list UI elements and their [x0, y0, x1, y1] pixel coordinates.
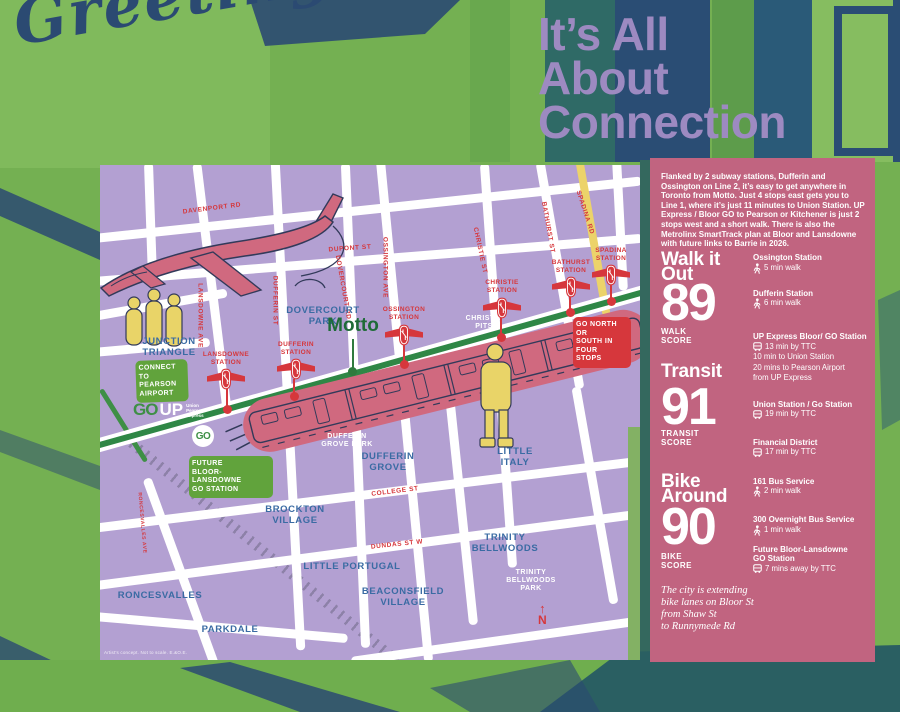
destination-detail: 20 mins to Pearson Airport [753, 363, 871, 374]
bus-icon [753, 410, 762, 419]
destination-item: 300 Overnight Bus Service 1 min walk [753, 515, 871, 536]
destination-item: Dufferin Station 6 min walk [753, 289, 871, 310]
station-marker-dot [497, 333, 506, 342]
walk-icon [753, 486, 761, 497]
motto-marker-dot [348, 367, 357, 376]
destination-name: Union Station / Go Station [753, 400, 871, 410]
bus-icon [753, 448, 762, 457]
page-title: It’s All About Connection [538, 12, 786, 144]
destination-detail: 13 min by TTC [753, 342, 871, 353]
bus-icon [753, 564, 762, 573]
transit-sidebar: Flanked by 2 subway stations, Dufferin a… [650, 158, 875, 662]
destination-detail: 17 min by TTC [753, 447, 871, 458]
destination-item: Union Station / Go Station 19 min by TTC [753, 400, 871, 420]
station-marker-dot [607, 297, 616, 306]
station-name-label: CHRISTIE STATION [457, 279, 547, 294]
destination-detail: 7 mins away by TTC [753, 564, 871, 575]
up-express-logo: GOUP Union Pearson Express [133, 401, 204, 418]
destination-detail: 6 min walk [753, 298, 871, 309]
destination-detail-text: 19 min by TTC [765, 409, 816, 420]
destination-item: UP Express Bloor/ GO Station 13 min by T… [753, 332, 871, 384]
transit-score-block: Transit 91 TRANSIT SCORE [661, 365, 756, 447]
ttc-logo-icon [206, 368, 246, 390]
park-edge-strip [628, 427, 640, 660]
destination-name: 300 Overnight Bus Service [753, 515, 871, 525]
destination-name: 161 Bus Service [753, 477, 871, 487]
station-marker-dot [400, 360, 409, 369]
destination-detail-text: 17 min by TTC [765, 447, 816, 458]
destination-detail: 10 min to Union Station [753, 352, 871, 363]
ttc-logo-icon [551, 276, 591, 298]
destination-detail: 19 min by TTC [753, 409, 871, 420]
map-attribution: Artist's concept. Not to scale. E.&O.E. [104, 650, 187, 655]
destination-detail-text: 10 min to Union Station [753, 352, 834, 363]
destination-detail-text: 13 min by TTC [765, 342, 816, 353]
destination-detail-text: 5 min walk [764, 263, 801, 274]
neighbourhood-label: PARKDALE [160, 625, 300, 636]
station-marker-dot [223, 405, 232, 414]
intro-paragraph: Flanked by 2 subway stations, Dufferin a… [661, 172, 865, 249]
destination-detail-text: from UP Express [753, 373, 812, 384]
destination-detail-text: 2 min walk [764, 486, 801, 497]
destination-detail: 1 min walk [753, 525, 871, 536]
bike-score-block: Bike Around 90 BIKE SCORE [661, 475, 756, 570]
walk-icon [753, 298, 761, 309]
destination-detail-text: 6 min walk [764, 298, 801, 309]
destination-item: Ossington Station 5 min walk [753, 253, 871, 274]
pedestrian-illustration [465, 340, 527, 452]
ttc-logo-icon [591, 264, 631, 286]
bike-score-value: 90 [661, 507, 756, 547]
go-transit-logo: GO [192, 425, 214, 447]
destination-name: Ossington Station [753, 253, 871, 263]
neighbourhood-label: LITTLE ITALY [445, 447, 585, 468]
bus-icon [753, 342, 762, 351]
destination-detail-text: 7 mins away by TTC [765, 564, 836, 575]
neighbourhood-label: BROCKTON VILLAGE [225, 505, 365, 526]
destination-item: 161 Bus Service 2 min walk [753, 477, 871, 498]
destination-detail-text: 1 min walk [764, 525, 801, 536]
ttc-logo-icon [276, 358, 316, 380]
map-panel: Motto GOUP Union Pearson Express GO ↑ N … [100, 165, 640, 660]
station-name-label: SPADINA STATION [566, 247, 640, 262]
walk-icon [753, 525, 761, 536]
bike-lanes-note: The city is extending bike lanes on Bloo… [661, 585, 761, 633]
destination-detail: from UP Express [753, 373, 871, 384]
destination-name: UP Express Bloor/ GO Station [753, 332, 871, 342]
compass: ↑ N [538, 603, 547, 626]
ttc-logo-icon [482, 297, 522, 319]
neighbourhood-label: TRINITY BELLWOODS [435, 533, 575, 554]
road-segment [351, 615, 640, 660]
destination-name: Financial District [753, 438, 871, 448]
station-marker-dot [290, 392, 299, 401]
motto-marker-stem [352, 339, 354, 368]
poster: Greetings It’s All About Connection [0, 0, 900, 712]
park-label: TRINITY BELLWOODS PARK [471, 569, 591, 593]
walk-score-value: 89 [661, 283, 756, 323]
map-badge: CONNECT TO PEARSON AIRPORT [135, 359, 188, 403]
station-marker-dot [566, 308, 575, 317]
destination-name: Future Bloor-Lansdowne GO Station [753, 545, 871, 564]
motto-label: Motto [313, 315, 393, 337]
neighbourhood-label: RONCESVALLES [100, 591, 230, 602]
station-name-label: DUFFERIN STATION [251, 341, 341, 356]
destination-detail: 5 min walk [753, 263, 871, 274]
destination-item: Financial District 17 min by TTC [753, 438, 871, 458]
destination-item: Future Bloor-Lansdowne GO Station 7 mins… [753, 545, 871, 575]
map-badge: FUTURE BLOOR-LANSDOWNE GO STATION [189, 456, 273, 498]
neighbourhood-label: DUFFERIN GROVE [318, 452, 458, 473]
walk-score-block: Walk it Out 89 WALK SCORE [661, 253, 756, 345]
destination-list: Ossington Station 5 min walkDufferin Sta… [753, 253, 871, 589]
walk-icon [753, 263, 761, 274]
destination-detail-text: 20 mins to Pearson Airport [753, 363, 845, 374]
destination-name: Dufferin Station [753, 289, 871, 299]
destination-detail: 2 min walk [753, 486, 871, 497]
map-badge: GO NORTH OR SOUTH IN FOUR STOPS [573, 317, 631, 368]
neighbourhood-label: LITTLE PORTUGAL [282, 562, 422, 573]
park-label: DUFFERIN GROVE PARK [287, 433, 407, 449]
transit-score-value: 91 [661, 387, 756, 427]
neighbourhood-label: BEACONSFIELD VILLAGE [333, 587, 473, 608]
